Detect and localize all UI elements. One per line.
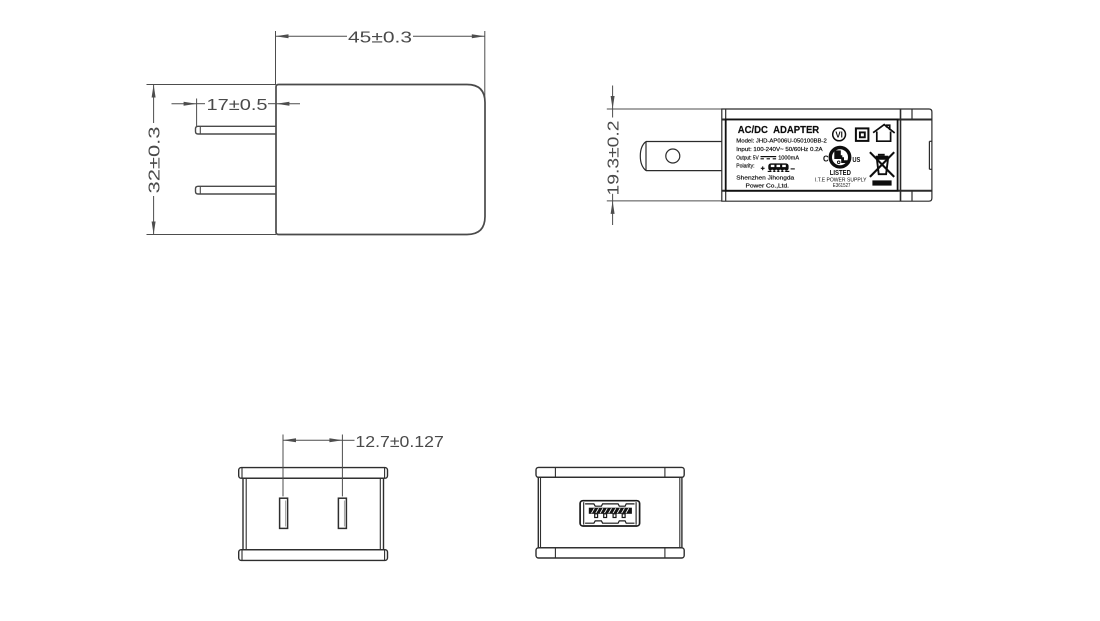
svg-text:1000mA: 1000mA: [778, 156, 799, 162]
svg-text:19.3±0.2: 19.3±0.2: [606, 121, 623, 196]
svg-text:45±0.3: 45±0.3: [348, 30, 412, 47]
svg-text:17±0.5: 17±0.5: [207, 97, 268, 114]
svg-text:E361527: E361527: [833, 183, 851, 189]
svg-text:Output:: Output:: [736, 156, 752, 162]
svg-text:Input: 100-240V~ 50/60Hz 0.2: Input: 100-240V~ 50/60Hz 0.2A: [736, 147, 822, 153]
svg-text:12.7±0.127: 12.7±0.127: [355, 434, 443, 451]
svg-text:5V: 5V: [753, 156, 759, 162]
svg-text:VI: VI: [835, 130, 843, 139]
svg-text:AC/DC ADAPTER: AC/DC ADAPTER: [738, 125, 820, 136]
svg-text:Power Co.,Ltd.: Power Co.,Ltd.: [746, 183, 790, 189]
svg-text:LISTED: LISTED: [830, 170, 851, 177]
svg-text:US: US: [852, 155, 860, 164]
svg-text:Model: JHD-AP006U-050100BB-2: Model: JHD-AP006U-050100BB-2: [736, 138, 827, 144]
svg-text:32±0.3: 32±0.3: [147, 127, 164, 194]
svg-text:Polarity:: Polarity:: [736, 164, 755, 170]
svg-text:C: C: [823, 155, 829, 164]
svg-text:Shenzhen Jihongda: Shenzhen Jihongda: [736, 176, 795, 182]
